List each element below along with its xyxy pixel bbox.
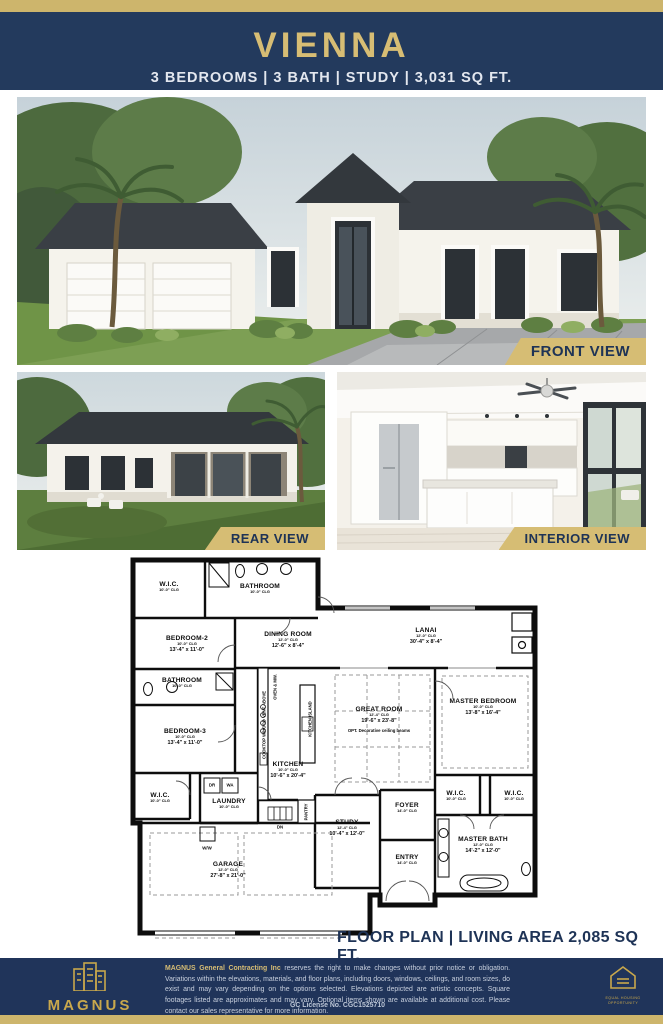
rear-view-banner: REAR VIEW: [205, 527, 325, 550]
bottom-gold-strip: [0, 1015, 663, 1024]
room-label: GARAGE12'-0" CLG27'-8" x 21'-0": [210, 861, 245, 879]
vertical-label: OVEN & MW.: [273, 674, 278, 700]
room-label: LAUNDRY10'-0" CLG: [212, 798, 245, 810]
plan-title: VIENNA: [0, 26, 663, 66]
top-gold-strip: [0, 0, 663, 12]
room-label: BEDROOM-310'-0" CLG13'-4" x 11'-0": [164, 728, 206, 746]
room-label: FOYER14'-0" CLG: [395, 802, 419, 814]
disclaimer-lead: MAGNUS General Contracting Inc: [165, 965, 281, 972]
disclaimer-text: MAGNUS General Contracting Inc reserves …: [165, 964, 510, 1018]
room-label: MASTER BATH12'-0" CLG14'-2" x 12'-0": [458, 836, 508, 854]
room-label: GREAT ROOM12'-4" CLG19'-6" x 23'-8"OPT. …: [348, 706, 410, 734]
front-view-label: FRONT VIEW: [531, 343, 630, 360]
room-label: STUDY12'-4" CLG10'-4" x 12'-0": [329, 819, 364, 837]
room-label: W.I.C.10'-0" CLG: [159, 581, 179, 593]
front-view-banner: FRONT VIEW: [505, 338, 646, 365]
vertical-label: KITCHEN ISLAND: [308, 701, 313, 736]
front-view-render: [17, 97, 646, 365]
room-label: ENTRY14'-0" CLG: [395, 854, 418, 866]
vertical-label: COOKTOP W/HOOD VENT ABOVE: [262, 691, 267, 759]
brand-building-icon: [68, 961, 112, 991]
room-label: BATHROOM10'-0" CLG: [240, 583, 280, 595]
room-label: BEDROOM-210'-0" CLG13'-4" x 11'-0": [166, 635, 208, 653]
vertical-label: PANTRY: [304, 804, 309, 821]
room-label: MASTER BEDROOM10'-0" CLG13'-8" x 16'-4": [450, 698, 517, 716]
floor-plan-labels: W.I.C.10'-0" CLGBATHROOM10'-0" CLGBEDROO…: [130, 557, 545, 952]
room-label: W.I.C.10'-0" CLG: [150, 792, 170, 804]
interior-view-image: INTERIOR VIEW: [337, 372, 646, 550]
room-label: W.I.C.10'-0" CLG: [446, 790, 466, 802]
header: VIENNA 3 BEDROOMS | 3 BATH | STUDY | 3,0…: [0, 12, 663, 90]
brand-logo: MAGNUS GENERAL CONTRACTING INC: [30, 961, 150, 1019]
small-label: DR: [209, 783, 215, 788]
rear-view-label: REAR VIEW: [231, 531, 309, 546]
interior-view-render: [337, 372, 646, 550]
room-label: LANAI12'-0" CLG30'-4" x 8'-4": [410, 627, 442, 645]
license-number: GC License No. CGC1525710: [165, 1002, 510, 1009]
small-label: DN: [277, 825, 283, 830]
small-label: W/W: [202, 846, 212, 851]
room-label: DINING ROOM12'-0" CLG12'-6" x 8'-4": [264, 631, 312, 649]
room-label: BATHROOM10'-0" CLG: [162, 677, 202, 689]
front-view-image: FRONT VIEW: [17, 97, 646, 365]
rear-view-render: [17, 372, 325, 550]
footer: MAGNUS GENERAL CONTRACTING INC MAGNUS Ge…: [0, 958, 663, 1015]
equal-housing-icon: [610, 966, 636, 990]
flyer-page: VIENNA 3 BEDROOMS | 3 BATH | STUDY | 3,0…: [0, 0, 663, 1024]
equal-housing-logo: EQUAL HOUSING OPPORTUNITY: [597, 966, 649, 1005]
equal-housing-text: EQUAL HOUSING OPPORTUNITY: [597, 996, 649, 1005]
room-label: W.I.C.10'-0" CLG: [504, 790, 524, 802]
rear-view-image: REAR VIEW: [17, 372, 325, 550]
brand-name: MAGNUS: [30, 997, 150, 1014]
plan-subtitle: 3 BEDROOMS | 3 BATH | STUDY | 3,031 SQ F…: [0, 70, 663, 86]
interior-view-banner: INTERIOR VIEW: [499, 527, 646, 550]
small-label: WA: [226, 783, 233, 788]
floor-plan: W.I.C.10'-0" CLGBATHROOM10'-0" CLGBEDROO…: [130, 557, 545, 952]
interior-view-label: INTERIOR VIEW: [525, 531, 630, 546]
room-label: KITCHEN10'-0" CLG10'-6" x 20'-4": [270, 761, 305, 779]
